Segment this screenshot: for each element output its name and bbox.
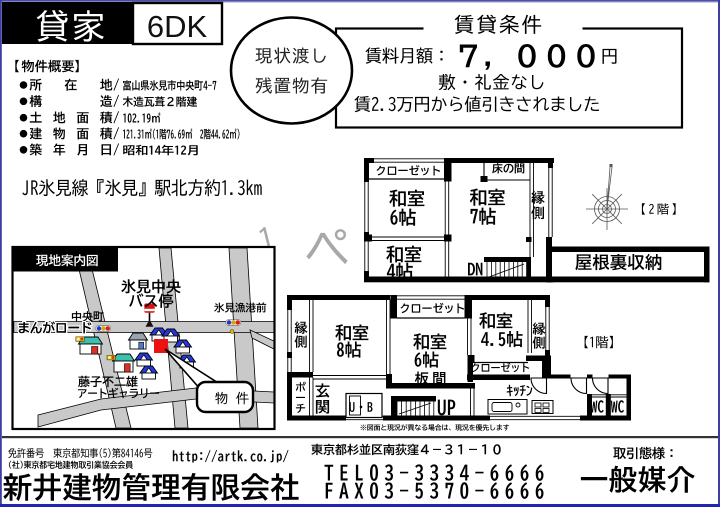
svg-text:6DK: 6DK xyxy=(147,9,208,44)
